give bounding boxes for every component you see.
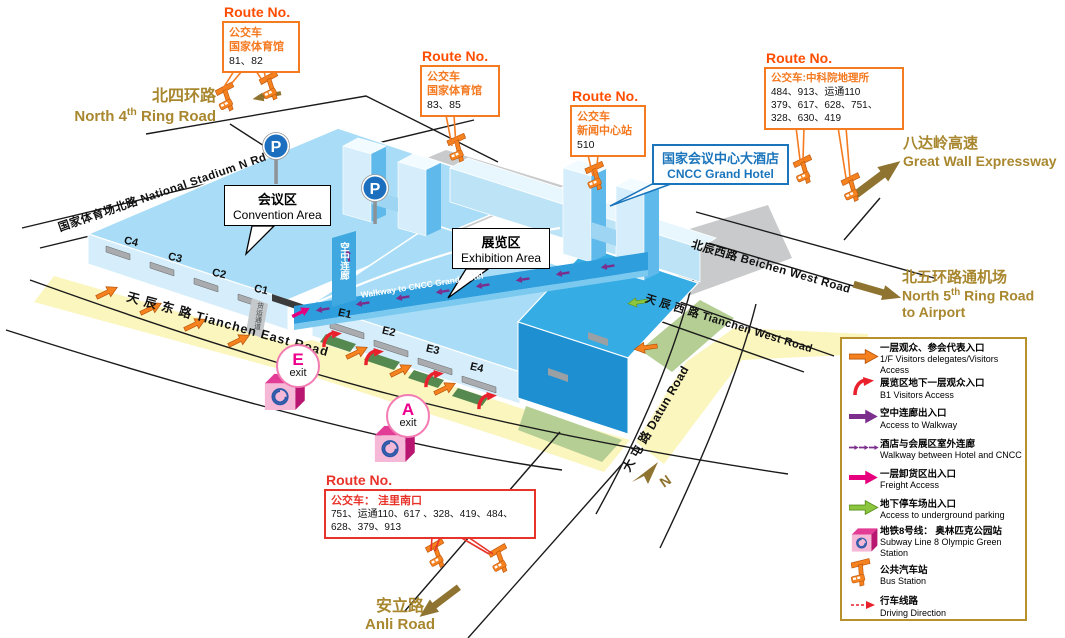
- route-box-title: Route No.: [766, 50, 904, 66]
- walkway-label-cn: 空中连廊: [336, 242, 350, 280]
- legend-row: 一层观众、参会代表入口1/F Visitors delegates/Visito…: [848, 344, 1022, 374]
- legend-row: 行车线路Driving Direction: [848, 592, 1022, 622]
- subway-exit-e-badge: E exit: [276, 344, 320, 388]
- legend-row: 展览区地下一层观众入口B1 Visitors Access: [848, 374, 1022, 404]
- cncc-venue-map: P P N 北四环路 North 4th Ring Road: [0, 0, 1065, 638]
- airport-arrow: [852, 277, 904, 305]
- road-label-cn: 八达岭高速: [903, 132, 1057, 153]
- legend-row: 地铁8号线： 奥林匹克公园站Subway Line 8 Olympic Gree…: [848, 525, 1022, 559]
- road-label-en: Great Wall Expressway: [903, 153, 1057, 169]
- outdoor-walkway-dashed-arrow-icon: [848, 441, 880, 459]
- road-label-en: North 4th Ring Road: [28, 106, 216, 125]
- anli-road-label: 安立路 Anli Road: [330, 592, 470, 633]
- parking-letter: P: [271, 139, 282, 156]
- bus-station-icon: [848, 558, 880, 593]
- road-label-en: North 5th Ring Road: [902, 287, 1034, 304]
- road-label-cn: 北五环路通机场: [902, 266, 1034, 287]
- subway-station-icon: [848, 527, 880, 558]
- compass-n: N: [657, 472, 674, 491]
- route-box-wali: Route No. 公交车： 洼里南口 751、运通110、617 、328、4…: [324, 472, 536, 539]
- route-box-title: Route No.: [224, 4, 300, 20]
- exhibition-area-callout: 展览区 Exhibition Area: [452, 228, 550, 269]
- route-box-body: 公交车 国家体育馆 81、82: [222, 21, 300, 73]
- route-box-510: Route No. 公交车 新闻中心站 510: [570, 88, 646, 157]
- north-5th-ring-label: 北五环路通机场 North 5th Ring Road to Airport: [902, 266, 1034, 320]
- route-box-cas: Route No. 公交车:中科院地理所 484、913、运通110 379、6…: [764, 50, 904, 130]
- freight-access-arrow-icon: [848, 470, 880, 490]
- convention-area-callout: 会议区 Convention Area: [224, 185, 331, 226]
- route-box-81-82: Route No. 公交车 国家体育馆 81、82: [222, 4, 300, 73]
- north-4th-ring-road-label: 北四环路 North 4th Ring Road: [28, 82, 216, 125]
- walkway-access-arrow-icon: [848, 409, 880, 429]
- legend-row: 公共汽车站Bus Station: [848, 559, 1022, 592]
- road-label-cn: 安立路: [330, 592, 470, 616]
- road-expressway-spur: [844, 198, 880, 240]
- legend-row: 酒店与会展区室外连廊Walkway between Hotel and CNCC: [848, 435, 1022, 465]
- route-box-body: 公交车:中科院地理所 484、913、运通110 379、617、628、751…: [764, 67, 904, 130]
- route-box-title: Route No.: [326, 472, 536, 488]
- route-box-body: 公交车： 洼里南口 751、运通110、617 、328、419、484、 62…: [324, 489, 536, 539]
- legend-row: 空中连廊出入口Access to Walkway: [848, 404, 1022, 434]
- b1-access-arrow-icon: [848, 377, 880, 402]
- underground-parking-arrow-icon: [848, 500, 880, 520]
- legend: 一层观众、参会代表入口1/F Visitors delegates/Visito…: [840, 337, 1027, 621]
- subway-exit-a-badge: A exit: [386, 394, 430, 438]
- driving-direction-icon: [848, 598, 880, 616]
- legend-row: 一层卸货区出入口Freight Access: [848, 465, 1022, 495]
- legend-row: 地下停车场出入口Access to underground parking: [848, 495, 1022, 525]
- parking-letter: P: [370, 181, 381, 198]
- route-box-83-85: Route No. 公交车 国家体育馆 83、85: [420, 48, 500, 117]
- compass: N: [632, 462, 674, 490]
- route-box-title: Route No.: [572, 88, 646, 104]
- cncc-grand-hotel-callout: 国家会议中心大酒店 CNCC Grand Hotel: [652, 144, 789, 185]
- route-box-title: Route No.: [422, 48, 500, 64]
- visitors-access-arrow-icon: [848, 349, 880, 369]
- road-label-en: Anli Road: [330, 616, 470, 633]
- route-box-body: 公交车 新闻中心站 510: [570, 105, 646, 157]
- road-label-cn: 北四环路: [28, 82, 216, 106]
- road-label-en2: to Airport: [902, 304, 1034, 320]
- route-box-body: 公交车 国家体育馆 83、85: [420, 65, 500, 117]
- great-wall-expressway-label: 八达岭高速 Great Wall Expressway: [903, 132, 1057, 169]
